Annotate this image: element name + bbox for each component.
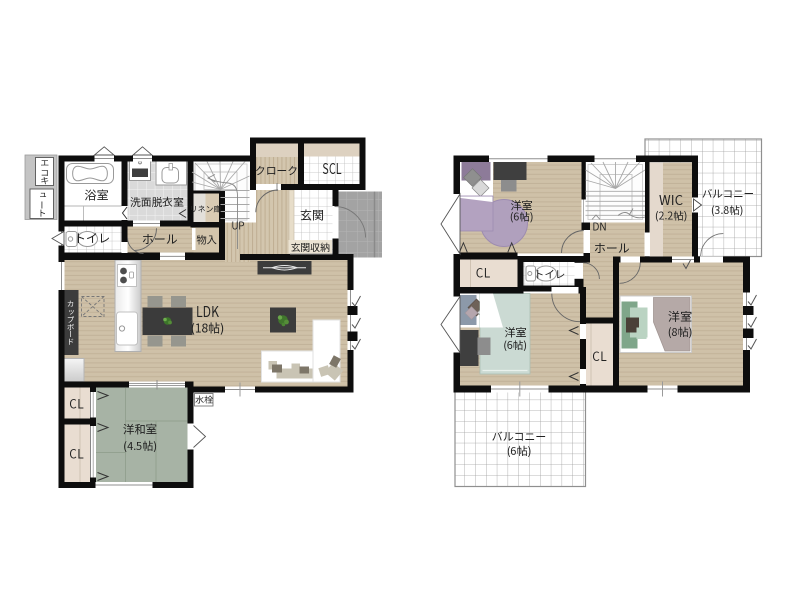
svg-text:トイレ: トイレ bbox=[74, 230, 110, 247]
svg-text:(18帖): (18帖) bbox=[191, 320, 224, 337]
svg-text:(2.2帖): (2.2帖) bbox=[655, 209, 687, 224]
svg-text:トイレ: トイレ bbox=[534, 267, 566, 282]
svg-text:ホール: ホール bbox=[594, 240, 630, 257]
svg-text:水栓: 水栓 bbox=[195, 393, 214, 406]
svg-text:バルコニー: バルコニー bbox=[702, 187, 754, 202]
svg-text:クローク: クローク bbox=[255, 163, 298, 179]
svg-text:UP: UP bbox=[232, 218, 245, 234]
svg-text:(6帖): (6帖) bbox=[507, 443, 532, 459]
svg-text:DN: DN bbox=[593, 219, 607, 235]
svg-text:CL: CL bbox=[593, 346, 607, 365]
svg-text:(6帖): (6帖) bbox=[503, 338, 526, 353]
svg-text:(4.5帖): (4.5帖) bbox=[123, 438, 157, 454]
svg-text:CL: CL bbox=[70, 444, 84, 463]
svg-text:CL: CL bbox=[70, 394, 84, 413]
svg-text:ホール: ホール bbox=[142, 231, 178, 248]
svg-text:物入: 物入 bbox=[196, 232, 217, 247]
svg-text:SCL: SCL bbox=[323, 158, 342, 179]
svg-text:(6帖): (6帖) bbox=[510, 210, 533, 225]
svg-text:WIC: WIC bbox=[659, 189, 683, 209]
svg-text:洗面脱衣室: 洗面脱衣室 bbox=[130, 194, 184, 210]
svg-text:玄関収納: 玄関収納 bbox=[291, 240, 330, 254]
svg-text:(8帖): (8帖) bbox=[668, 324, 693, 340]
svg-text:カップボード: カップボード bbox=[65, 300, 76, 346]
svg-text:浴室: 浴室 bbox=[84, 187, 108, 204]
svg-text:エコキ: エコキ bbox=[38, 158, 51, 185]
svg-text:玄関: 玄関 bbox=[300, 207, 324, 224]
svg-text:洋和室: 洋和室 bbox=[123, 422, 158, 438]
svg-text:ュート: ュート bbox=[36, 191, 49, 218]
svg-text:リネン庫: リネン庫 bbox=[190, 204, 222, 215]
svg-text:洋室: 洋室 bbox=[668, 308, 692, 325]
svg-text:CL: CL bbox=[476, 263, 490, 282]
svg-text:(3.8帖): (3.8帖) bbox=[711, 203, 743, 218]
